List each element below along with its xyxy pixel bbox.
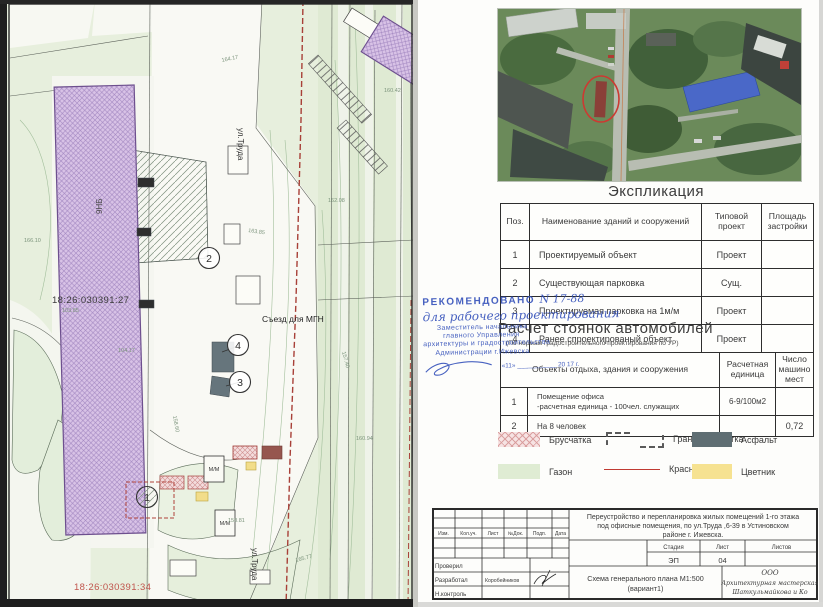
row-pos: 1	[501, 241, 529, 268]
elevation: 158.81	[228, 518, 245, 524]
flowerbed-swatch	[692, 464, 732, 479]
callout-4: 4	[235, 340, 241, 352]
explication-title: Экспликация	[500, 183, 812, 200]
company-name2: Шаткульмайкова и Ко	[731, 589, 807, 596]
row-type: Сущ.	[701, 269, 761, 296]
sheet-label: Лист	[716, 545, 729, 551]
row-count	[775, 388, 813, 415]
sheet-value: 04	[718, 556, 726, 565]
cadastral-number-left: 18:26:030391:27	[52, 295, 129, 306]
col-count: Число машино мест	[775, 353, 813, 387]
elevation: 104.17	[118, 348, 135, 354]
building-label: 9НБ	[95, 199, 104, 214]
elevation: 162.08	[328, 198, 345, 204]
col-pos: Поз.	[501, 204, 529, 240]
legend-asphalt: Асфальт	[692, 432, 777, 447]
approval-stamp: РЕКОМЕНДОВАНО N 17-88 для рабочего проек…	[422, 287, 639, 379]
col-data: Дата	[555, 531, 566, 537]
row-name: Помещение офиса -расчетная единица - 100…	[527, 388, 719, 415]
col-type: Типовой проект	[701, 204, 761, 240]
legend-label: Асфальт	[741, 435, 777, 445]
row-area	[761, 241, 813, 268]
project-line3: районе г. Ижевска.	[663, 531, 724, 539]
developer-name: Коробейников	[485, 577, 519, 584]
scheme-title1: Схема генерального плана М1:500	[587, 574, 703, 583]
stage-value: ЭП	[668, 556, 679, 565]
red-line-swatch	[604, 469, 660, 470]
site-plan-page: М/М М/М 2 4 3 1	[0, 0, 418, 607]
asphalt-swatch	[692, 432, 732, 447]
row-name: Проектируемый объект	[529, 241, 701, 268]
legend-label: Цветник	[741, 467, 775, 477]
role-control: Н.контроль	[435, 592, 466, 598]
callout-1: 1	[144, 492, 150, 504]
scheme-title2: (вариант1)	[628, 584, 664, 593]
table-row: 1 Проектируемый объект Проект	[501, 240, 813, 268]
parking-space-label: М/М	[209, 467, 220, 473]
project-line1: Переустройство и перепланировка жилых по…	[587, 513, 799, 521]
callout-2: 2	[206, 253, 212, 265]
elevation: 103.85	[62, 308, 79, 314]
project-line2: под офисные помещения, по ул.Труда ,6-39…	[597, 523, 789, 530]
company-name1: Архитектурная мастерская	[720, 580, 818, 587]
stamp-recommended: РЕКОМЕНДОВАНО	[422, 295, 535, 308]
elevation: 166.10	[24, 238, 41, 244]
col-podp: Подп.	[533, 531, 546, 537]
col-list: Лист	[488, 531, 500, 537]
company-form: ООО	[761, 569, 778, 577]
row-area	[761, 269, 813, 296]
street-label-bottom: ул.Труда	[250, 548, 259, 581]
col-name: Наименование зданий и сооружений	[529, 204, 701, 240]
stamp-date: «11» ___________ 20 17 г.	[502, 361, 580, 370]
aerial-photo	[497, 8, 802, 182]
title-block-grid: Изм. Кол.уч. Лист №Док. Подп. Дата Прове…	[432, 508, 818, 600]
legend-paving: Брусчатка	[498, 432, 591, 447]
col-area: Площадь застройки	[761, 204, 813, 240]
title-block: Изм. Кол.уч. Лист №Док. Подп. Дата Прове…	[432, 508, 818, 600]
col-koluch: Кол.уч.	[460, 531, 476, 537]
row-area	[761, 325, 813, 352]
street-label-top: ул.Труда	[236, 128, 245, 161]
row-name-line1: Помещение офиса	[537, 392, 604, 401]
legend-flowerbed: Цветник	[692, 464, 775, 479]
col-izm: Изм.	[438, 531, 449, 537]
row-name-line2: -расчетная единица - 100чел. служащих	[537, 402, 679, 411]
paving-swatch	[498, 432, 540, 447]
row-type: Проект	[701, 241, 761, 268]
ramp-label: Съезд для МГН	[262, 314, 324, 324]
legend-label: Брусчатка	[549, 435, 591, 445]
stamp-number: N 17-88	[539, 292, 584, 306]
col-unit: Расчетная единица	[719, 353, 775, 387]
role-checked: Проверил	[435, 564, 463, 570]
row-area	[761, 297, 813, 324]
map-legend: Брусчатка Границы участка Асфальт Газон …	[496, 428, 816, 488]
page-edge-bottom	[418, 602, 823, 607]
col-dok: №Док.	[508, 531, 523, 537]
row-unit: 6-9/100м2	[719, 388, 775, 415]
scanned-document: М/М М/М 2 4 3 1	[0, 0, 823, 607]
aerial-photo-image	[498, 9, 801, 181]
signature-squiggle	[424, 357, 496, 379]
legend-label: Газон	[549, 467, 572, 477]
legend-lawn: Газон	[498, 464, 572, 479]
callout-3: 3	[237, 377, 243, 389]
boundary-swatch	[606, 431, 664, 447]
stage-label: Стадия	[663, 545, 683, 551]
explication-header-row: Поз. Наименование зданий и сооружений Ти…	[501, 204, 813, 240]
site-plan-map: М/М М/М 2 4 3 1	[0, 0, 418, 607]
role-developed: Разработал	[435, 578, 468, 584]
page-edge-right	[819, 0, 823, 607]
lawn-swatch	[498, 464, 540, 479]
table-row: 1 Помещение офиса -расчетная единица - 1…	[501, 387, 813, 415]
cadastral-number-bottom: 18:26:030391:34	[74, 582, 151, 593]
elevation: 160.94	[356, 436, 373, 442]
elevation: 160.42	[384, 88, 401, 94]
row-pos: 1	[501, 388, 527, 415]
document-page: Экспликация Поз. Наименование зданий и с…	[418, 0, 823, 607]
sheets-label: Листов	[772, 545, 792, 551]
